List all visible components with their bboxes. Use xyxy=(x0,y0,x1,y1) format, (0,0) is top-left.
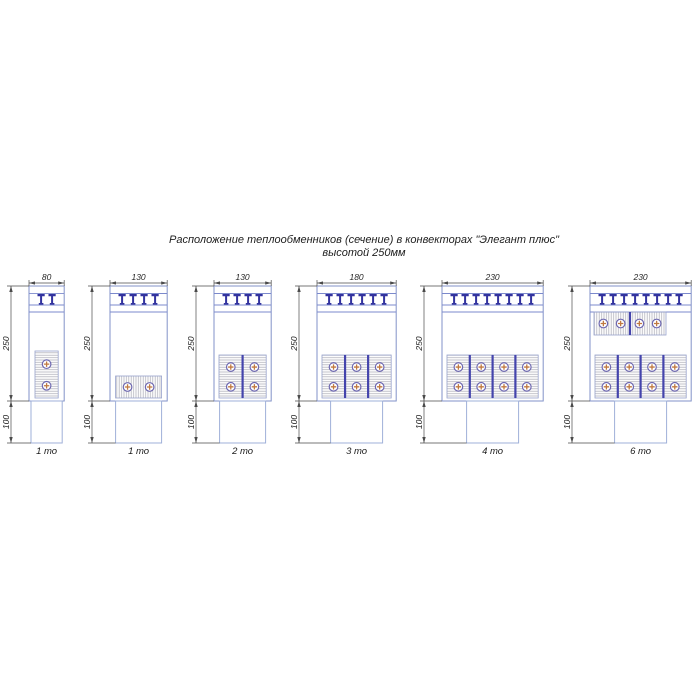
drawing-sheet: Расположение теплообменников (сечение) в… xyxy=(0,0,700,700)
tube-symbol xyxy=(42,381,51,390)
conv-180-3to: 1802501003 то xyxy=(289,270,404,465)
base-height-dimension-label: 100 xyxy=(1,415,11,429)
width-dimension-label: 130 xyxy=(235,272,249,282)
tube-symbol xyxy=(375,383,384,392)
base-height-dimension-label: 100 xyxy=(289,415,299,429)
diagram-caption: 4 то xyxy=(483,446,504,457)
convector-base xyxy=(467,401,519,443)
tube-symbol xyxy=(329,363,338,372)
tube-symbol xyxy=(652,319,661,328)
convector-base xyxy=(331,401,383,443)
convector-base xyxy=(219,401,265,443)
width-dimension: 180 xyxy=(317,272,396,286)
conv-230-4to: 2302501004 то xyxy=(414,270,551,465)
width-dimension-label: 180 xyxy=(350,272,364,282)
height-dimension-label: 250 xyxy=(414,336,424,351)
width-dimension-label: 80 xyxy=(42,272,52,282)
tube-symbol xyxy=(124,383,133,392)
heat-exchanger-block xyxy=(35,351,58,398)
width-dimension-label: 130 xyxy=(132,272,146,282)
diagram-row: 802501001 то1302501001 то1302501002 то18… xyxy=(1,270,699,465)
width-dimension: 230 xyxy=(590,272,691,286)
height-dimension-label: 250 xyxy=(289,336,299,351)
tube-symbol xyxy=(670,363,679,372)
tube-symbol xyxy=(375,363,384,372)
tube-symbol xyxy=(602,363,611,372)
diagram-caption: 3 то xyxy=(346,446,367,457)
conv-80-1to: 802501001 то xyxy=(1,270,72,465)
tube-symbol xyxy=(352,363,361,372)
width-dimension-label: 230 xyxy=(632,272,647,282)
height-dimension-label: 250 xyxy=(82,336,92,351)
height-dimension: 250100 xyxy=(1,286,31,443)
convector-base xyxy=(614,401,666,443)
width-dimension-label: 230 xyxy=(485,272,500,282)
base-height-dimension-label: 100 xyxy=(562,415,572,429)
conv-130-2to: 1302501002 то xyxy=(186,270,279,465)
tube-symbol xyxy=(250,383,259,392)
tube-symbol xyxy=(250,363,259,372)
tube-symbol xyxy=(625,383,634,392)
tube-symbol xyxy=(226,383,235,392)
height-dimension-label: 250 xyxy=(186,336,196,351)
conv-130-1to: 1302501001 то xyxy=(82,270,175,465)
tube-symbol xyxy=(455,383,464,392)
tube-symbol xyxy=(647,383,656,392)
convector-base xyxy=(116,401,162,443)
tube-symbol xyxy=(647,363,656,372)
heat-exchanger-block xyxy=(116,376,162,398)
diagram-caption: 2 то xyxy=(231,446,253,457)
diagram-caption: 6 то xyxy=(630,446,651,457)
convector-base xyxy=(31,401,62,443)
width-dimension: 80 xyxy=(29,272,64,286)
tube-symbol xyxy=(477,363,486,372)
drawing-title-line2: высотой 250мм xyxy=(14,247,700,260)
tube-symbol xyxy=(523,363,532,372)
conv-230-6to: 2302501006 то xyxy=(562,270,699,465)
width-dimension: 230 xyxy=(442,272,543,286)
tube-symbol xyxy=(635,319,644,328)
drawing-title: Расположение теплообменников (сечение) в… xyxy=(14,234,700,259)
tube-symbol xyxy=(523,383,532,392)
tube-symbol xyxy=(455,363,464,372)
width-dimension: 130 xyxy=(214,272,271,286)
tube-symbol xyxy=(477,383,486,392)
diagram-caption: 1 то xyxy=(128,446,149,457)
tube-symbol xyxy=(670,383,679,392)
base-height-dimension-label: 100 xyxy=(186,415,196,429)
tube-symbol xyxy=(500,383,509,392)
tube-symbol xyxy=(500,363,509,372)
diagram-caption: 1 то xyxy=(36,446,57,457)
drawing-title-line1: Расположение теплообменников (сечение) в… xyxy=(14,234,700,247)
height-dimension-label: 250 xyxy=(562,336,572,351)
tube-symbol xyxy=(602,383,611,392)
tube-symbol xyxy=(616,319,625,328)
tube-symbol xyxy=(226,363,235,372)
tube-symbol xyxy=(146,383,155,392)
tube-symbol xyxy=(42,360,51,369)
width-dimension: 130 xyxy=(110,272,167,286)
base-height-dimension-label: 100 xyxy=(82,415,92,429)
base-height-dimension-label: 100 xyxy=(414,415,424,429)
tube-symbol xyxy=(599,319,608,328)
tube-symbol xyxy=(329,383,338,392)
tube-symbol xyxy=(352,383,361,392)
height-dimension-label: 250 xyxy=(1,336,11,351)
tube-symbol xyxy=(625,363,634,372)
